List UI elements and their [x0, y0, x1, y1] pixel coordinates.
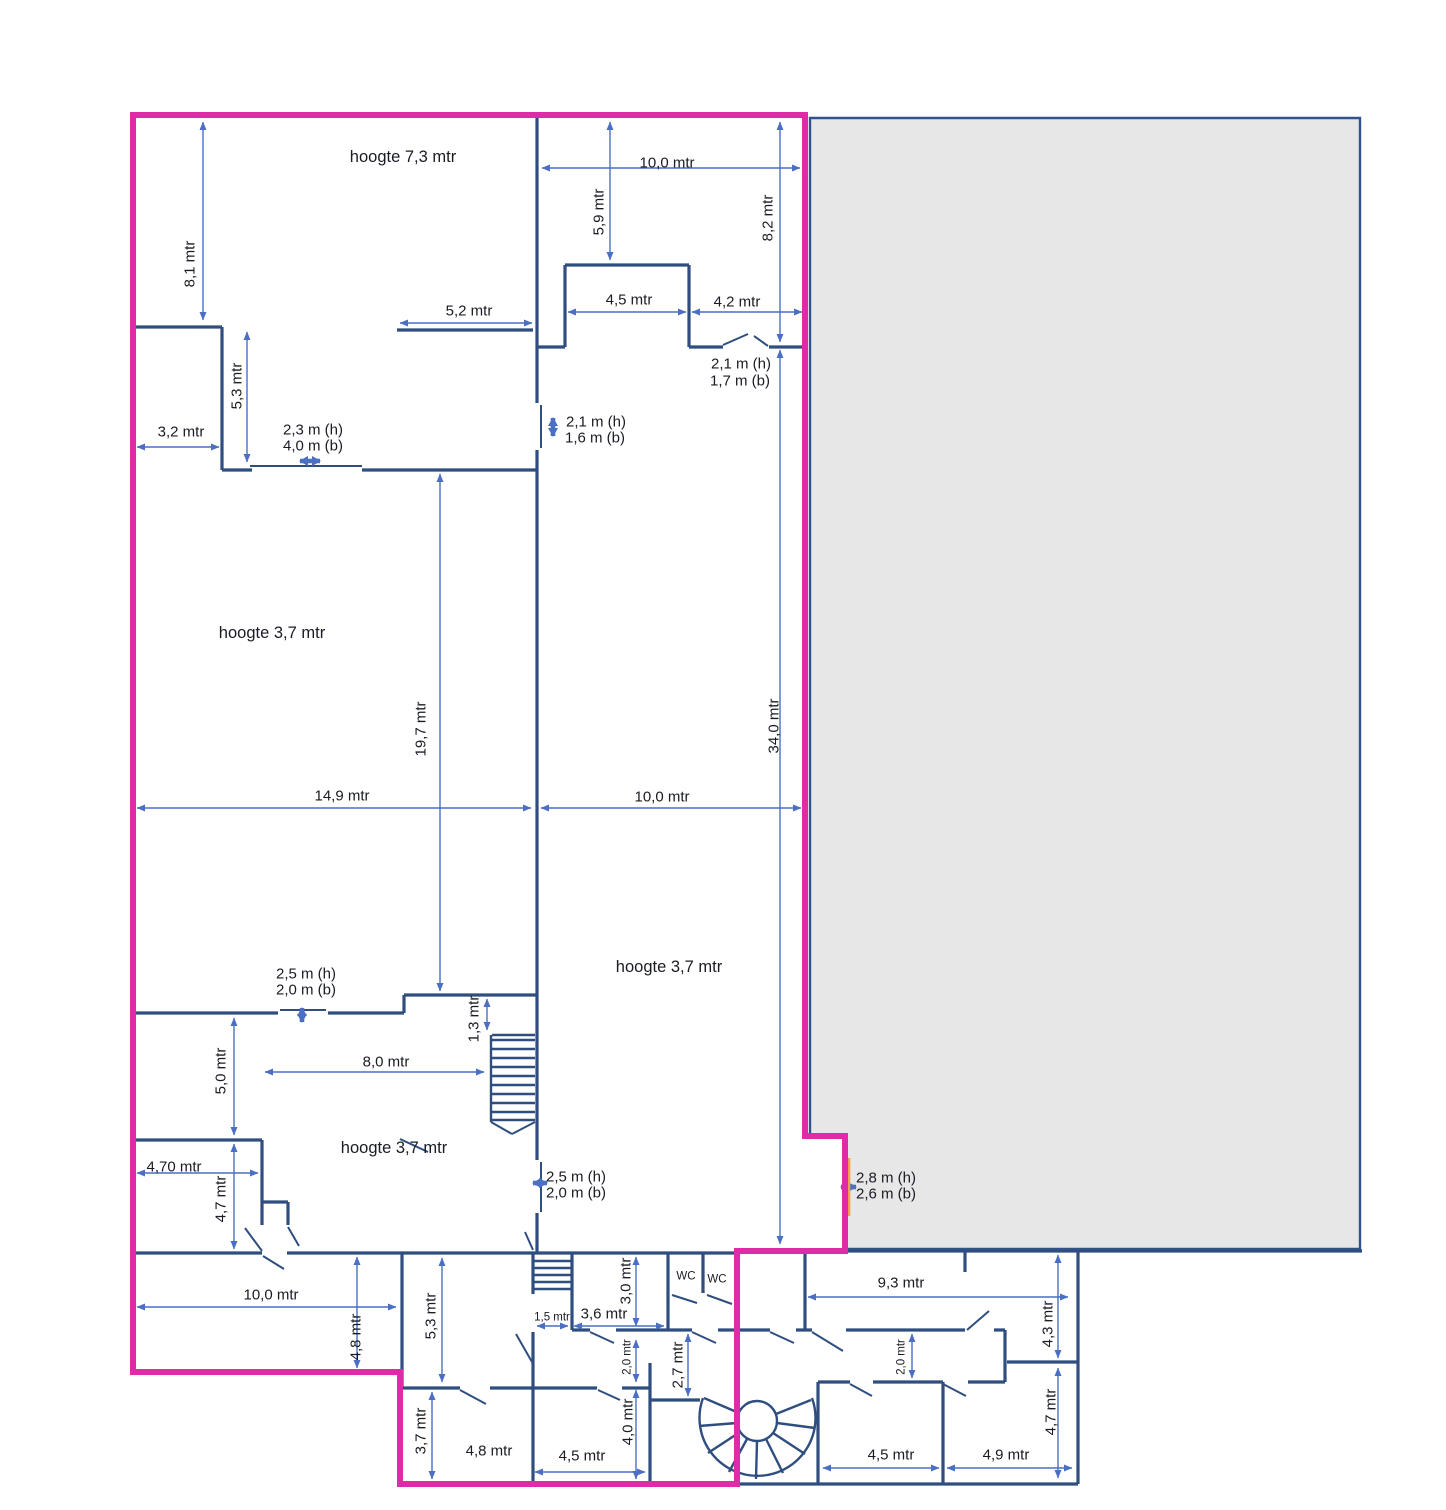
dim-label-3-0: 3,0 mtr — [619, 1258, 634, 1305]
dim-label-19-7: 19,7 mtr — [414, 701, 429, 756]
dim-label-10-0-mid: 10,0 mtr — [634, 790, 689, 805]
dim-label-2-7: 2,7 mtr — [671, 1342, 686, 1389]
dim-label-2-0-mid: 2,0 mtr — [622, 1339, 634, 1375]
door-label-2-0b-a: 2,0 m (b) — [276, 983, 336, 998]
dim-label-5-3-upper: 5,3 mtr — [230, 363, 245, 410]
dim-label-10-0-top: 10,0 mtr — [639, 156, 694, 171]
room-height-label-lower: hoogte 3,7 mtr — [341, 1140, 447, 1157]
door-label-2-8h: 2,8 m (h) — [856, 1171, 916, 1186]
unit-outline-pink — [133, 115, 845, 1484]
door-label-2-5h-a: 2,5 m (h) — [276, 967, 336, 982]
dim-label-3-6: 3,6 mtr — [581, 1307, 628, 1322]
dim-label-4-3: 4,3 mtr — [1041, 1301, 1056, 1348]
dim-label-4-5-top: 4,5 mtr — [606, 293, 653, 308]
door-label-2-1h-2: 2,1 m (h) — [566, 415, 626, 430]
dim-label-4-70: 4,70 mtr — [146, 1160, 201, 1175]
staircase-straight — [491, 1035, 535, 1134]
dim-label-4-8-bottom: 4,8 mtr — [466, 1444, 513, 1459]
dim-label-3-7-bottom: 3,7 mtr — [414, 1408, 429, 1455]
door-label-2-5h-b: 2,5 m (h) — [546, 1170, 606, 1185]
door-label-2-3h: 2,3 m (h) — [283, 423, 343, 438]
dim-label-2-0-right: 2,0 mtr — [896, 1339, 908, 1375]
dim-label-1-3: 1,3 mtr — [467, 996, 482, 1043]
dim-label-4-7-right: 4,7 mtr — [1044, 1389, 1059, 1436]
door-label-2-1h: 2,1 m (h) — [711, 357, 771, 372]
dim-label-4-7-left: 4,7 mtr — [214, 1176, 229, 1223]
door-label-4-0b: 4,0 m (b) — [283, 439, 343, 454]
dim-label-4-2: 4,2 mtr — [714, 295, 761, 310]
wc-label-2: WC — [707, 1274, 726, 1286]
dim-label-8-2: 8,2 mtr — [761, 195, 776, 242]
dim-label-34-0: 34,0 mtr — [767, 698, 782, 753]
dim-label-9-3: 9,3 mtr — [878, 1276, 925, 1291]
dim-label-8-0: 8,0 mtr — [363, 1055, 410, 1070]
dim-label-5-2: 5,2 mtr — [446, 304, 493, 319]
door-label-1-7b: 1,7 m (b) — [710, 374, 770, 389]
door-label-2-0b-b: 2,0 m (b) — [546, 1186, 606, 1201]
room-height-label-right: hoogte 3,7 mtr — [616, 959, 722, 976]
dim-label-5-3-bottom: 5,3 mtr — [424, 1293, 439, 1340]
dim-label-5-0: 5,0 mtr — [214, 1048, 229, 1095]
dim-label-4-0: 4,0 mtr — [621, 1399, 636, 1446]
floorplan-page: hoogte 7,3 mtr 8,1 mtr 10,0 mtr 5,9 mtr … — [0, 0, 1446, 1510]
staircase-small — [534, 1261, 572, 1289]
dim-label-1-5: 1,5 mtr — [534, 1312, 570, 1324]
dim-label-8-1: 8,1 mtr — [183, 241, 198, 288]
door-label-1-6b: 1,6 m (b) — [565, 431, 625, 446]
dim-label-4-8-left: 4,8 mtr — [349, 1314, 364, 1361]
room-height-label: hoogte 7,3 mtr — [350, 149, 456, 166]
dim-label-3-2: 3,2 mtr — [158, 425, 205, 440]
dim-label-5-9: 5,9 mtr — [592, 189, 607, 236]
dim-label-10-0-bottom: 10,0 mtr — [243, 1288, 298, 1303]
gray-adjacent-area — [810, 118, 1360, 1249]
dim-label-14-9: 14,9 mtr — [314, 789, 369, 804]
room-height-label-left: hoogte 3,7 mtr — [219, 625, 325, 642]
dim-label-4-9: 4,9 mtr — [983, 1448, 1030, 1463]
dim-label-4-5-bottomright: 4,5 mtr — [868, 1448, 915, 1463]
dim-label-4-5-bottomleft: 4,5 mtr — [559, 1449, 606, 1464]
wc-label-1: WC — [676, 1271, 695, 1283]
door-label-2-6b: 2,6 m (b) — [856, 1187, 916, 1202]
spiral-staircase — [699, 1398, 816, 1479]
